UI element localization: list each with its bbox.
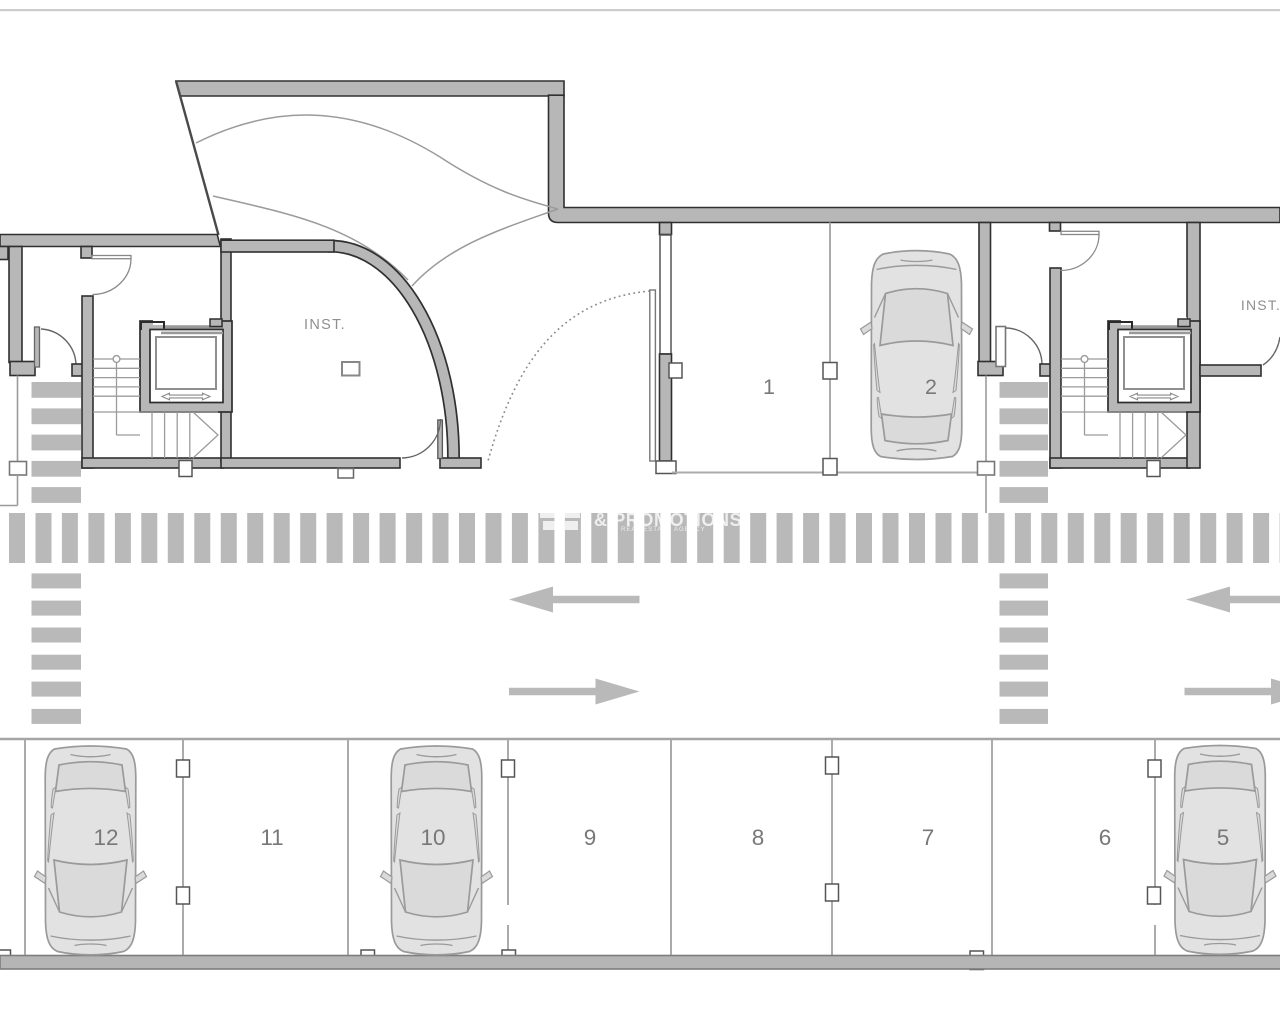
svg-text:9: 9 <box>584 825 597 850</box>
svg-text:6: 6 <box>1099 825 1112 850</box>
svg-text:1: 1 <box>763 375 775 399</box>
svg-text:INST.: INST. <box>1241 297 1280 313</box>
svg-text:5: 5 <box>1217 825 1230 850</box>
svg-text:12: 12 <box>93 825 118 850</box>
svg-text:7: 7 <box>922 825 935 850</box>
svg-text:8: 8 <box>752 825 765 850</box>
svg-text:REAL ESTATE AGENCY: REAL ESTATE AGENCY <box>621 526 706 533</box>
svg-text:11: 11 <box>260 825 283 850</box>
svg-text:INST.: INST. <box>304 317 346 333</box>
svg-text:2: 2 <box>925 375 937 399</box>
svg-text:10: 10 <box>420 825 445 850</box>
